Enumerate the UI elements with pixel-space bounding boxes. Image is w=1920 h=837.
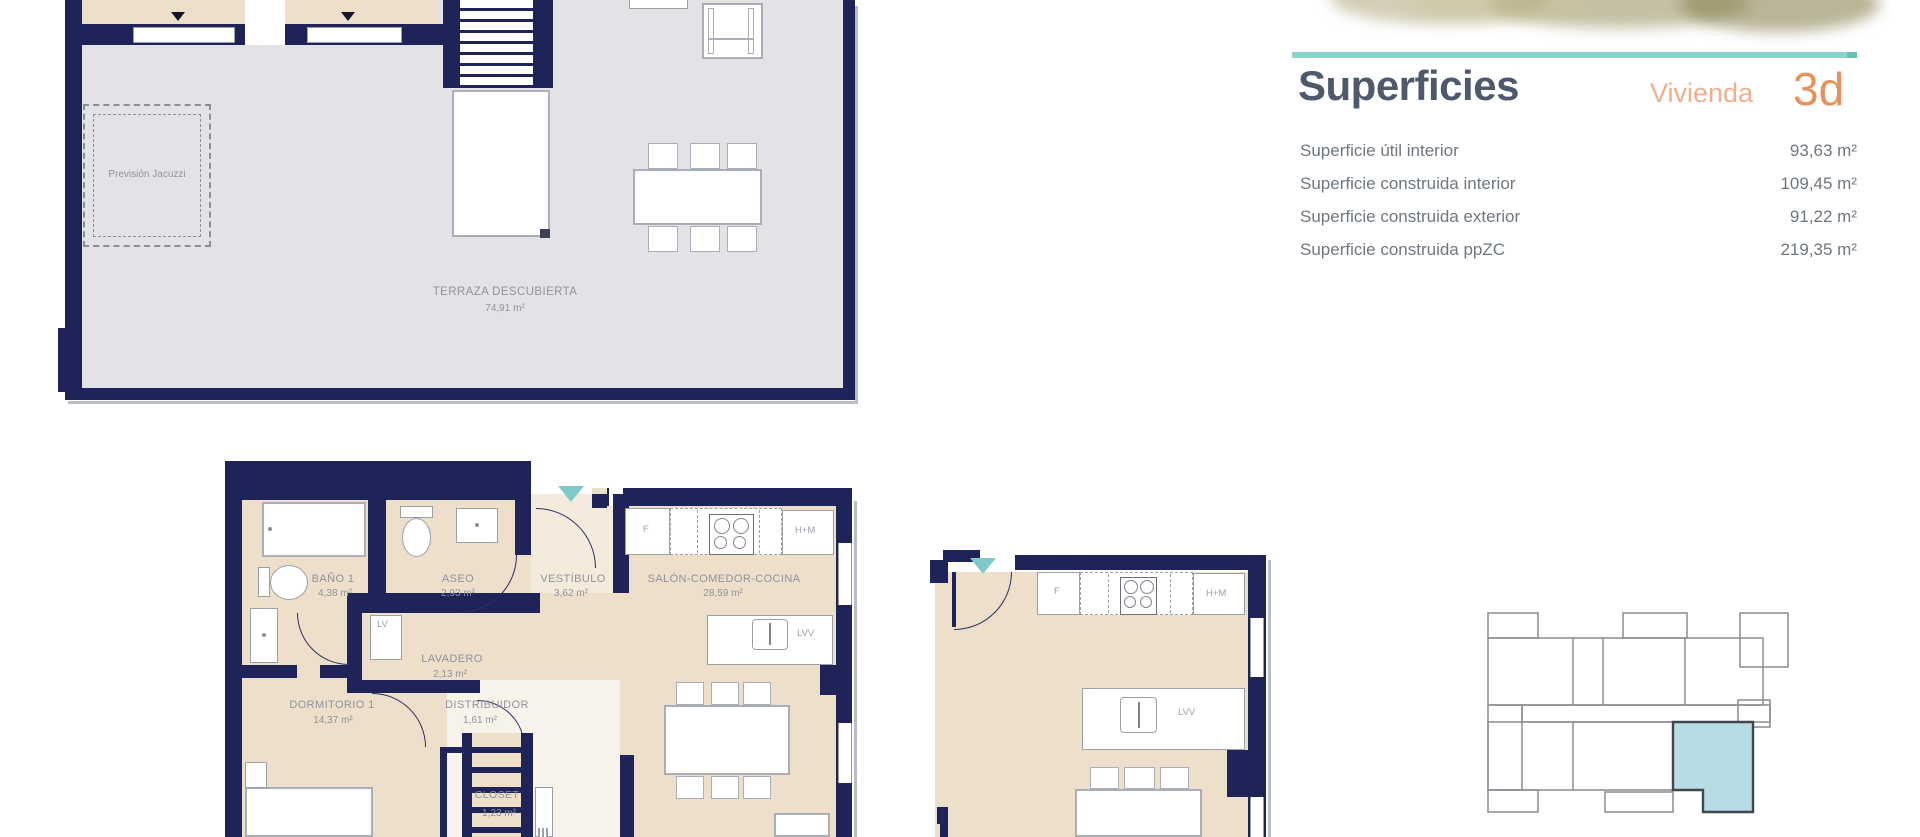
wall-banio-aseo [368, 500, 386, 593]
room-top-1 [82, 0, 245, 24]
wall-aseo-vestibulo [515, 500, 531, 555]
toilet-aseo-bowl [402, 518, 431, 557]
armchair-seat-line [708, 38, 754, 40]
chair [648, 226, 678, 252]
kitchen-top-wall [607, 488, 852, 506]
p-shadow-right [1268, 560, 1271, 837]
stairs-landing [452, 90, 550, 237]
dishwasher-handle [769, 623, 771, 645]
teal-divider-cap [1847, 52, 1857, 58]
closet-shelves [472, 733, 521, 837]
p-counter-divider [1170, 574, 1171, 613]
p-fridge-label: F [1054, 586, 1060, 597]
wall-left [225, 461, 242, 837]
surface-row-label: Superficie construida ppZC [1300, 240, 1660, 260]
floorplan-sheet: Previsión Jacuzzi TERRAZA DESCUBIERTA 74… [0, 0, 1920, 837]
p-lvv-label: LVV [1178, 707, 1195, 718]
p-kitchen-top-wall [1015, 555, 1266, 570]
wall-salon-lower [620, 755, 634, 837]
lvv-label: LVV [797, 628, 814, 639]
stove [709, 514, 754, 555]
stairs-steps [460, 0, 533, 88]
teal-divider [1292, 52, 1857, 58]
terrace-area: 74,91 m² [485, 303, 524, 314]
side-table [629, 0, 688, 9]
door-handle [538, 828, 548, 837]
dining-table-terrace [633, 169, 762, 225]
toilet-banio-bowl [270, 565, 308, 600]
wall-banio-bottom [242, 665, 347, 678]
entrance-marker-icon [558, 486, 584, 502]
room-name: CLOSET [475, 789, 519, 801]
p-hm-label: H+M [1206, 588, 1226, 599]
chair [676, 776, 704, 799]
hm-label: H+M [795, 525, 815, 536]
aseo-sink-drain [475, 523, 479, 527]
couch [774, 813, 830, 837]
partial-plan: F H+M LVV [930, 545, 1275, 837]
shadow-right [854, 501, 857, 837]
dining-table [664, 705, 790, 775]
armchair-arm-right [748, 8, 754, 54]
room-name: VESTÍBULO [540, 573, 605, 585]
wall-lavadero-bottom [347, 680, 480, 693]
p-stub-left [930, 560, 948, 583]
stairs-rail-right [533, 0, 553, 88]
chair [690, 143, 720, 169]
terrace-wall-right [843, 0, 855, 398]
vivienda-label: Vivienda [1650, 78, 1753, 109]
room-name: LAVADERO [421, 653, 482, 665]
terrace-shadow-bottom [68, 401, 858, 404]
p-stub-bottom-1 [937, 807, 948, 824]
chair [676, 682, 704, 705]
chair [648, 143, 678, 169]
p-dishwasher-handle [1138, 702, 1140, 728]
terrace-wall-stub [58, 328, 70, 392]
key-plan [1478, 594, 1858, 824]
wall-hinge-vertical [347, 613, 362, 680]
toilet-aseo-tank [400, 506, 433, 518]
room-name: DORMITORIO 1 [289, 699, 374, 711]
chair [727, 226, 757, 252]
chair [1124, 767, 1155, 789]
p-wall-pillar [1227, 750, 1266, 797]
stairs-rail-left [443, 0, 460, 88]
chair [727, 143, 757, 169]
bathtub [262, 502, 366, 557]
room-top-2 [285, 0, 438, 24]
lv-label: LV [377, 619, 388, 630]
p-window-right-1 [1250, 618, 1264, 677]
chair [711, 682, 739, 705]
door-marker-2-icon [341, 12, 355, 21]
surface-row-label: Superficie útil interior [1300, 141, 1660, 161]
closet-rail-left [462, 733, 472, 837]
p-dining-table [1075, 789, 1202, 837]
window-right-2 [838, 723, 852, 783]
highlighted-unit [1673, 722, 1753, 812]
surface-row-value: 219,35 m² [1780, 240, 1857, 260]
nightstand [245, 762, 267, 788]
unit-number: 3d [1793, 62, 1844, 116]
terrace-label: TERRAZA DESCUBIERTA [433, 286, 578, 298]
room-area: 2,13 m² [433, 669, 467, 680]
chair [1160, 767, 1189, 789]
room-area: 4,38 m² [318, 588, 352, 599]
p-window-right-2 [1250, 797, 1264, 837]
wall-right [836, 488, 852, 837]
window-1 [133, 27, 235, 43]
chair [743, 776, 771, 799]
terrace-shadow-right [855, 6, 858, 402]
key-plan-svg [1478, 594, 1858, 824]
chair [743, 682, 771, 705]
p-stub-bottom-2 [940, 823, 948, 837]
room-area: 2,93 m² [441, 588, 475, 599]
wall-pillar [820, 665, 852, 695]
window-2 [307, 27, 402, 43]
armchair-arm-left [708, 8, 714, 54]
room-area: 1,23 m² [482, 808, 516, 819]
counter-divider [759, 510, 760, 553]
panel-title: Superficies [1298, 62, 1519, 110]
chair [690, 226, 720, 252]
banio-sink-drain [262, 633, 266, 637]
room-name: ASEO [442, 573, 474, 585]
fridge-label: F [643, 524, 649, 535]
room-area: 14,37 m² [313, 715, 352, 726]
surface-row-label: Superficie construida interior [1300, 174, 1660, 194]
window-right-1 [838, 543, 852, 605]
watercolor-art [1290, 0, 1890, 46]
apartment-plan: LV F H+M LVV [225, 461, 860, 837]
p-island [1082, 688, 1245, 750]
surface-row-value: 91,22 m² [1790, 207, 1857, 227]
p-stove [1120, 577, 1157, 615]
counter-divider [697, 510, 698, 553]
room-name: DISTRIBUIDOR [445, 699, 529, 711]
bed [245, 787, 373, 837]
terrace-opening [245, 0, 285, 45]
p-counter-divider [1108, 574, 1109, 613]
wall-top [225, 461, 531, 500]
chair [711, 776, 739, 799]
door-marker-1-icon [171, 12, 185, 21]
chair [1090, 767, 1119, 789]
stairs-landing-post [540, 229, 550, 238]
surface-row-value: 109,45 m² [1780, 174, 1857, 194]
banio-door-opening [297, 665, 320, 678]
surface-row-label: Superficie construida exterior [1300, 207, 1660, 227]
jacuzzi-label: Previsión Jacuzzi [108, 169, 185, 180]
room-name: SALÓN-COMEDOR-COCINA [648, 573, 801, 585]
surface-row-value: 93,63 m² [1790, 141, 1857, 161]
entry-stub [592, 494, 607, 508]
terrace-plan: Previsión Jacuzzi TERRAZA DESCUBIERTA 74… [58, 0, 860, 406]
room-area: 28,59 m² [703, 588, 742, 599]
room-area: 1,61 m² [463, 715, 497, 726]
room-area: 3,62 m² [554, 588, 588, 599]
wall-dorm-distrib [440, 747, 447, 837]
terrace-wall-bottom [65, 388, 855, 400]
bathtub-drain [268, 527, 272, 531]
closet-rail-right [521, 733, 533, 837]
toilet-banio-tank [258, 567, 270, 597]
room-name: BAÑO 1 [312, 573, 355, 585]
